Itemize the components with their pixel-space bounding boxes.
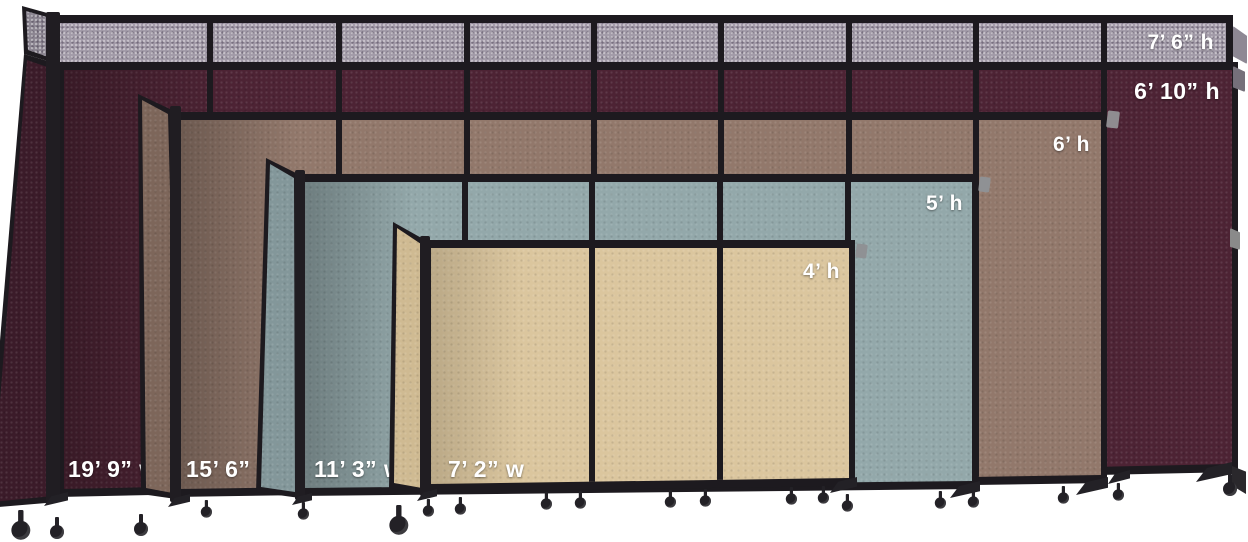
- caster-wheel: [574, 491, 587, 512]
- caster-wheel: [10, 510, 32, 542]
- height-label-6ft: 6’ h: [1053, 134, 1090, 155]
- panel-divider: [336, 23, 342, 63]
- caster-wheel: [817, 486, 830, 507]
- caster-wheel: [133, 514, 149, 540]
- caster-wheel: [422, 499, 435, 520]
- panel-divider: [718, 23, 724, 63]
- end-cap-tab: [978, 176, 991, 192]
- height-label-4ft: 4’ h: [803, 261, 840, 282]
- corner-post: [46, 12, 60, 502]
- shading-overlay: [431, 248, 521, 484]
- body-frame: 4’ h 7’ 2” w: [425, 240, 855, 492]
- panel-divider: [464, 23, 470, 63]
- junction-post: [170, 106, 181, 502]
- caster-wheel: [540, 492, 553, 513]
- end-cap-tab: [1233, 26, 1247, 64]
- body-fabric: 7’ 6” h: [58, 23, 1226, 63]
- caster-wheel: [49, 517, 65, 542]
- end-cap-tab: [855, 243, 868, 258]
- height-label-7ft6: 7’ 6” h: [1147, 32, 1214, 53]
- caster-wheel: [1222, 474, 1238, 500]
- hinge-tab: [1230, 228, 1240, 250]
- height-label-5ft: 5’ h: [926, 193, 963, 214]
- panel-divider: [717, 248, 723, 484]
- body-frame: 7’ 6” h: [58, 15, 1233, 70]
- caster-wheel: [967, 490, 980, 511]
- caster-wheel: [785, 487, 798, 508]
- caster-wheel: [699, 489, 712, 510]
- partition-size-comparison-image: 7’ 6” h 6’ 10” h 19’ 9” w: [0, 0, 1248, 542]
- caster-wheel: [1112, 483, 1125, 504]
- height-label-6ft10: 6’ 10” h: [1134, 80, 1220, 103]
- panel-divider: [846, 23, 852, 63]
- caster-wheel: [297, 502, 310, 523]
- panel-divider: [973, 23, 979, 63]
- body-fabric: 4’ h 7’ 2” w: [431, 248, 849, 484]
- caster-wheel: [841, 494, 854, 515]
- junction-post: [295, 170, 305, 500]
- junction-post: [420, 236, 430, 496]
- caster-wheel: [1057, 486, 1070, 507]
- panel-divider: [591, 23, 597, 63]
- caster-wheel: [934, 491, 947, 512]
- caster-wheel: [200, 500, 213, 521]
- panel-divider: [589, 248, 595, 484]
- panel-divider: [207, 23, 213, 63]
- caster-wheel: [454, 497, 467, 518]
- width-label-7ft2: 7’ 2” w: [448, 458, 524, 481]
- caster-wheel: [388, 505, 410, 540]
- panel-divider: [1101, 23, 1107, 63]
- caster-wheel: [664, 490, 677, 511]
- width-label-11ft3: 11’ 3” w: [314, 458, 402, 481]
- end-cap-tab: [1106, 110, 1120, 128]
